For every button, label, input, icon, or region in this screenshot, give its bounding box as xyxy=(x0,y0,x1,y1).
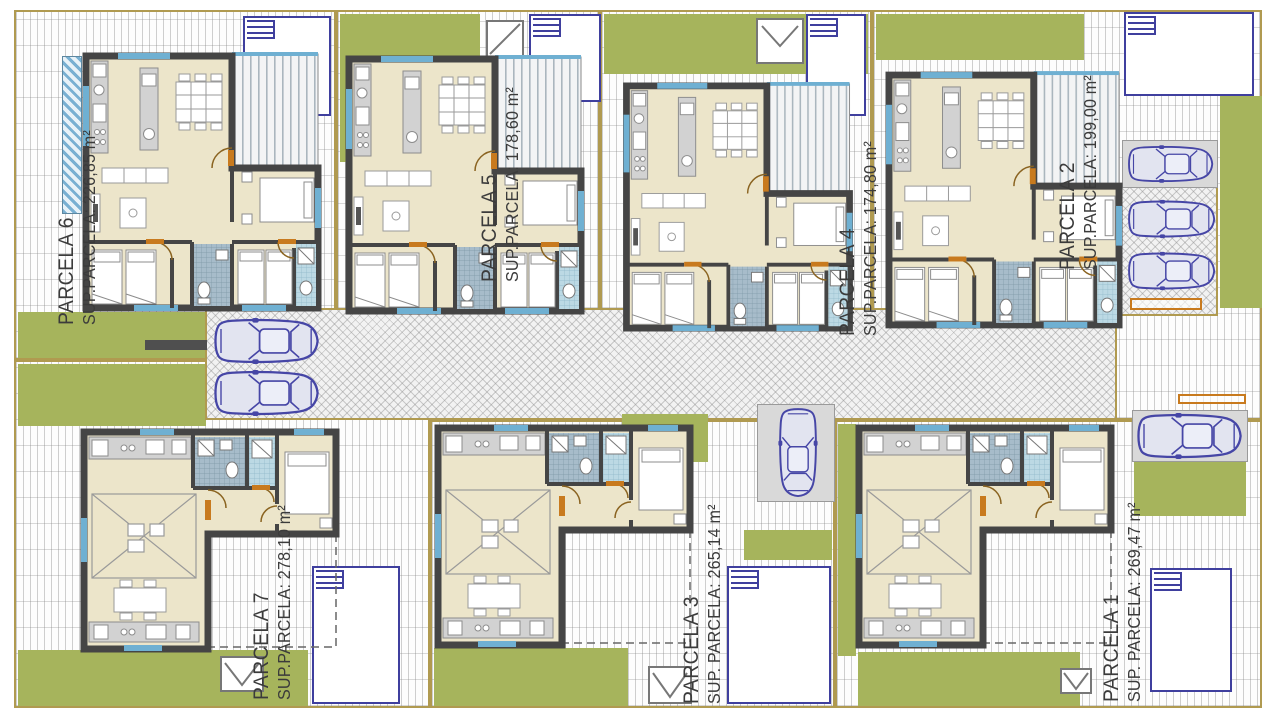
villa-floorplan-parcela-5 xyxy=(345,55,585,315)
parcel-area: SUP. PARCELA: 269,47 m² xyxy=(1123,504,1146,702)
villa-floorplan-parcela-6 xyxy=(82,52,322,312)
parcel-name: PARCELA 2 xyxy=(1056,40,1079,270)
gate-bar xyxy=(1130,298,1202,310)
villa-floorplan-parcela-7 xyxy=(80,428,345,653)
parcel-name: PARCELA 6 xyxy=(55,90,78,325)
parcel-area: SUP. PARCELA: 265,14 m² xyxy=(703,506,726,704)
shade-sail-icon xyxy=(1060,668,1092,694)
parcel-7-label: PARCELA 7 SUP.PARCELA: 278,10 m² xyxy=(250,502,296,700)
grass-area xyxy=(858,652,1080,706)
swimming-pool xyxy=(727,566,831,704)
grass-area xyxy=(1220,96,1262,308)
parcel-name: PARCELA 1 xyxy=(1100,504,1123,702)
car-top-view xyxy=(1126,248,1218,294)
car-top-view xyxy=(776,406,820,500)
swimming-pool xyxy=(1150,568,1232,692)
parcel-name: PARCELA 4 xyxy=(836,113,859,336)
grass-area xyxy=(1134,462,1246,516)
villa-floorplan-parcela-3 xyxy=(434,424,699,649)
parcel-area: SUP.PARCELA: 278,10 m² xyxy=(273,502,296,700)
parcel-area: SUP.PARCELA: 199,00 m² xyxy=(1079,40,1102,270)
parcel-name: PARCELA 5 xyxy=(478,52,501,282)
grass-area xyxy=(18,312,206,358)
car-top-view xyxy=(1134,413,1246,459)
entrance-steps xyxy=(145,340,207,350)
car-top-view xyxy=(1126,142,1216,186)
parcel-5-label: PARCELA 5 SUP.PARCELA: 178,60 m² xyxy=(478,52,524,282)
shade-sail-icon xyxy=(756,18,804,64)
parcel-name: PARCELA 7 xyxy=(250,502,273,700)
pool-steps xyxy=(810,18,838,37)
villa-floorplan-parcela-4 xyxy=(612,82,864,332)
grass-area xyxy=(876,14,1084,60)
pool-steps xyxy=(247,20,275,39)
pool-steps xyxy=(533,18,561,37)
grass-area xyxy=(744,530,832,560)
grass-area xyxy=(838,424,856,656)
villa-floorplan-parcela-1 xyxy=(855,424,1120,649)
gate-bar xyxy=(1178,394,1246,404)
parcel-area: SUP.PARCELA: 226,85 m² xyxy=(78,90,101,325)
parcel-4-label: PARCELA 4 SUP.PARCELA: 174,80 m² xyxy=(836,113,882,336)
parcel-6-label: PARCELA 6 SUP.PARCELA: 226,85 m² xyxy=(55,90,101,325)
parcel-1-label: PARCELA 1 SUP. PARCELA: 269,47 m² xyxy=(1100,504,1146,702)
car-top-view xyxy=(208,318,326,364)
site-plan: PARCELA 6 SUP.PARCELA: 226,85 m² PARCELA… xyxy=(0,0,1280,720)
car-top-view xyxy=(1126,196,1218,242)
parcel-area: SUP.PARCELA: 178,60 m² xyxy=(501,52,524,282)
parcel-area: SUP.PARCELA: 174,80 m² xyxy=(859,113,882,336)
pool-steps xyxy=(1128,16,1156,35)
swimming-pool xyxy=(1124,12,1254,96)
car-top-view xyxy=(208,370,326,416)
grass-area xyxy=(434,648,628,706)
grass-area xyxy=(18,364,206,426)
parcel-2-label: PARCELA 2 SUP.PARCELA: 199,00 m² xyxy=(1056,40,1102,270)
pool-steps xyxy=(1154,572,1182,591)
parcel-name: PARCELA 3 xyxy=(680,506,703,704)
parcel-3-label: PARCELA 3 SUP. PARCELA: 265,14 m² xyxy=(680,506,726,704)
pool-steps xyxy=(731,570,759,589)
